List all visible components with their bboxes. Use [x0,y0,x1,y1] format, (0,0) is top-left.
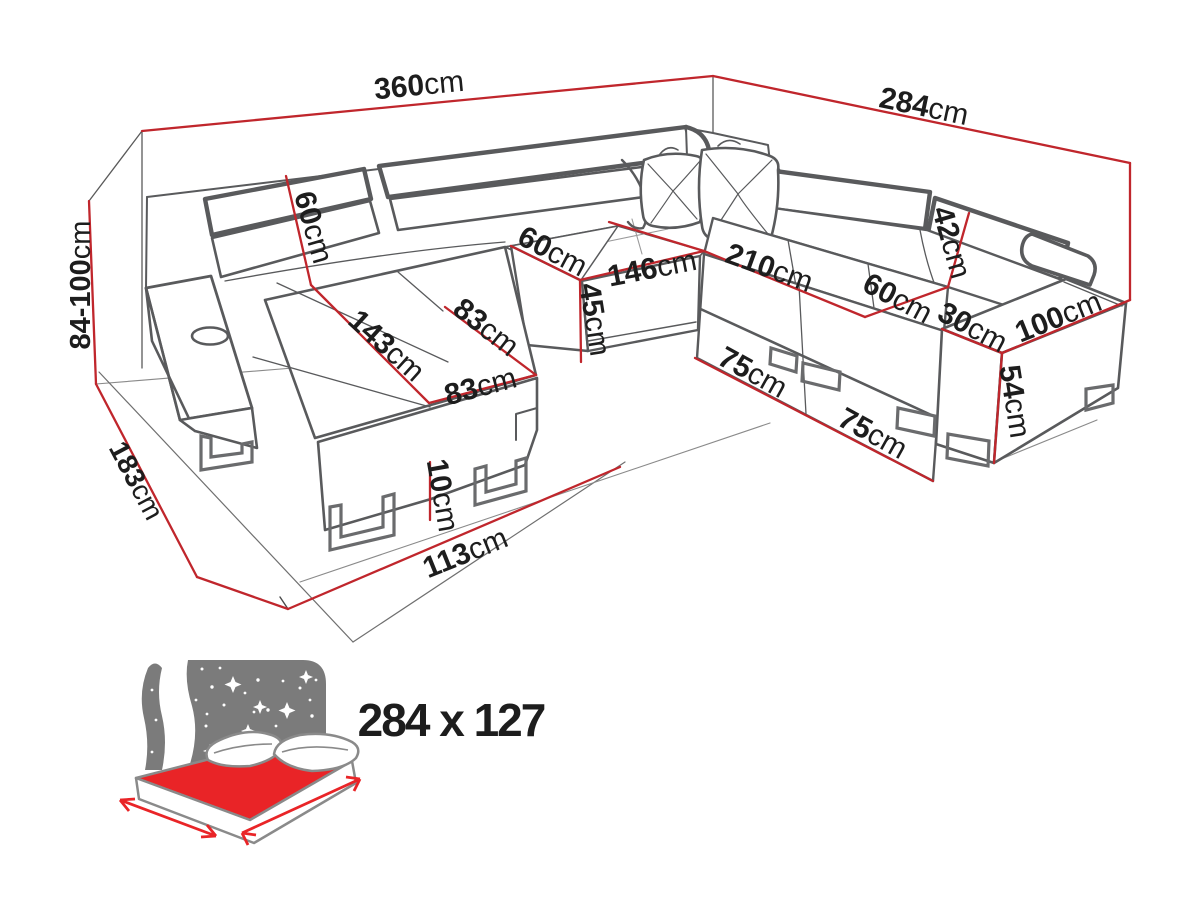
svg-text:84-100cm: 84-100cm [65,221,97,350]
svg-text:284 x 127: 284 x 127 [358,694,545,746]
